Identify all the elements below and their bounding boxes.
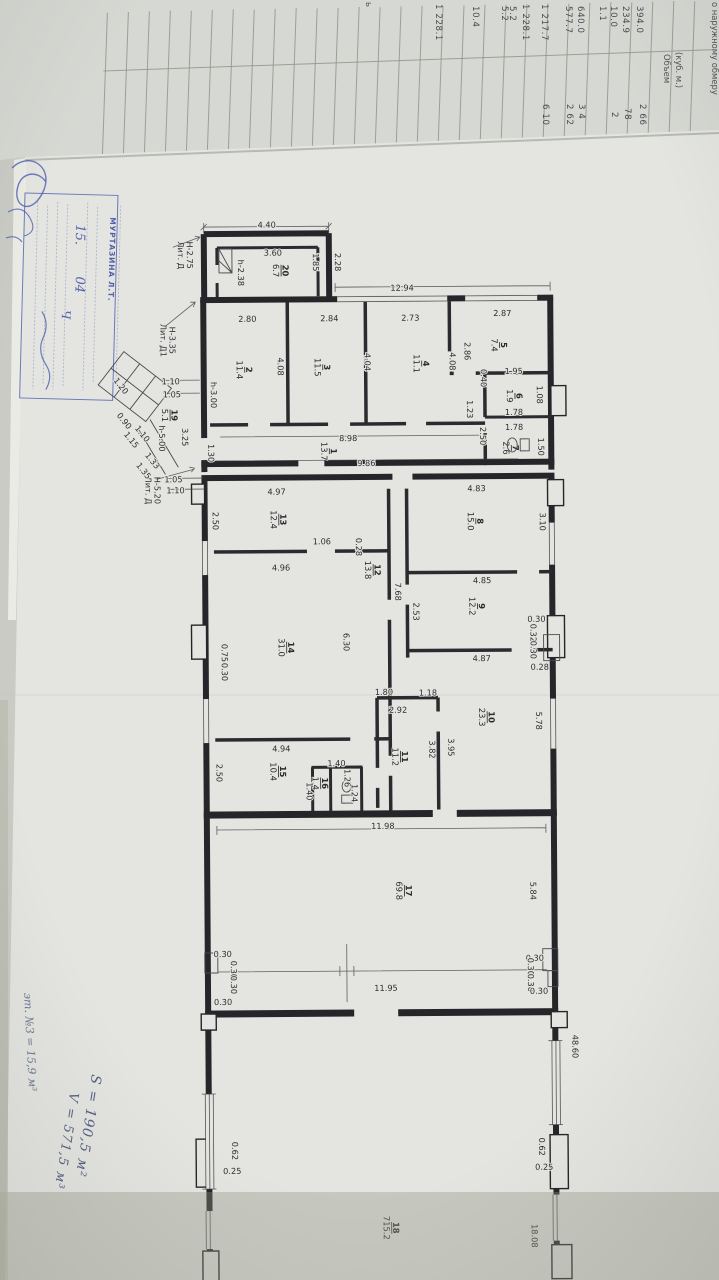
photo-of-floorplan-document: 394.0 234.9 10.0 1.1 640.0 577.7 1 217.7…: [0, 0, 719, 1280]
vignette: [0, 0, 719, 1280]
document-photo-svg: 394.0 234.9 10.0 1.1 640.0 577.7 1 217.7…: [0, 0, 719, 1280]
